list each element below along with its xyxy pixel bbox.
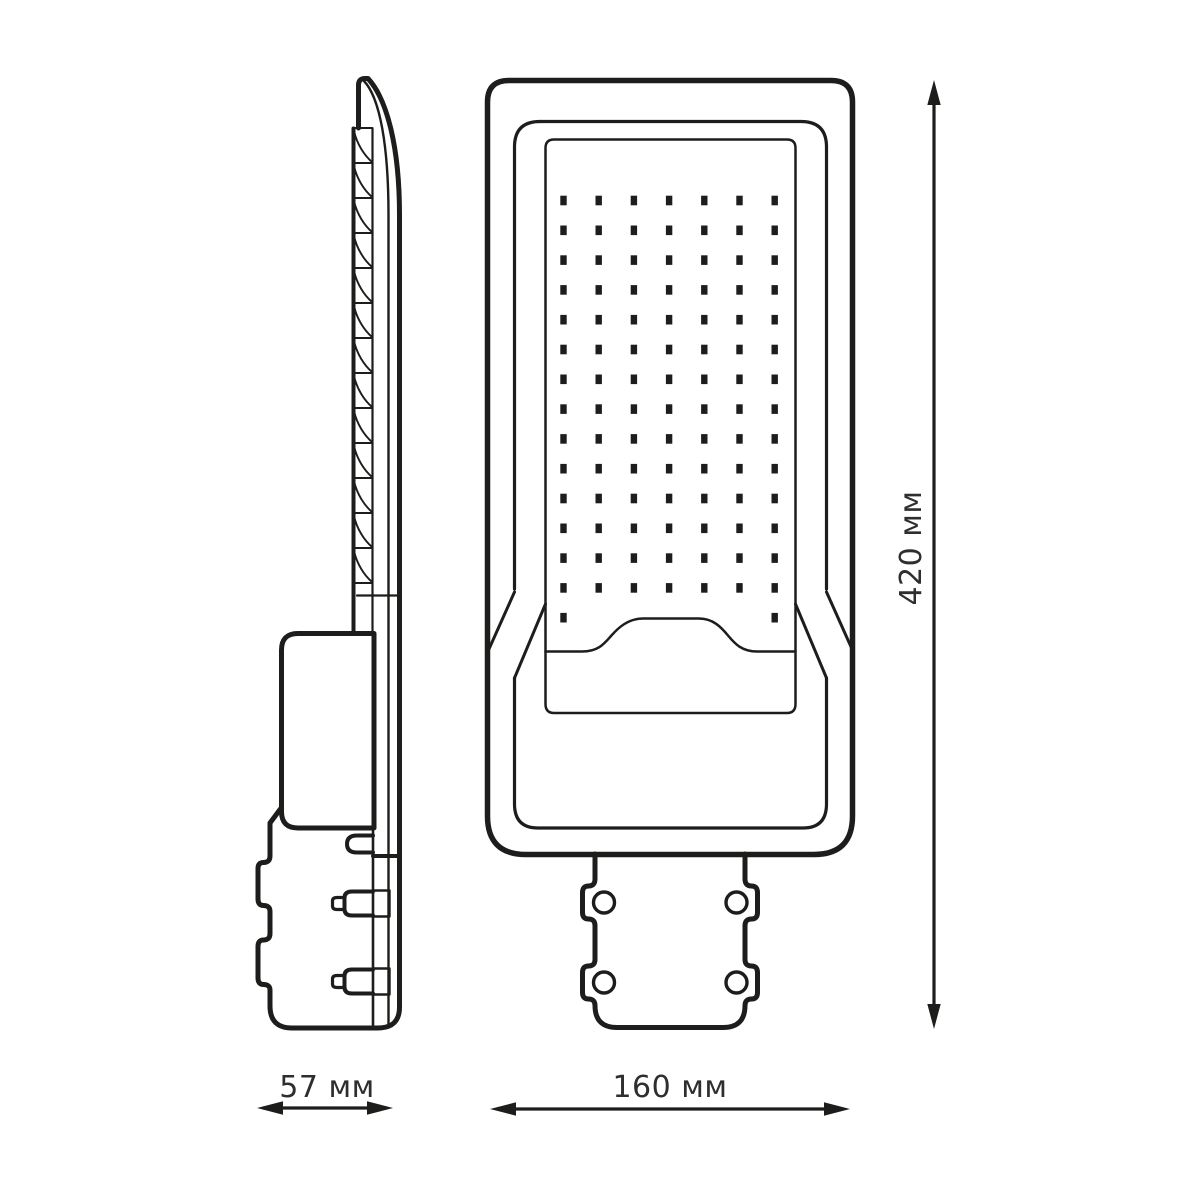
bolt-boss (373, 969, 390, 995)
led-dot (701, 583, 707, 593)
mount-screw-hole (726, 892, 747, 913)
led-dot (772, 494, 778, 504)
side-bolt-upper (333, 891, 390, 917)
led-dot (666, 315, 672, 325)
led-dot (772, 255, 778, 265)
led-dot (596, 226, 602, 236)
led-dot (701, 524, 707, 534)
led-dot (701, 404, 707, 414)
led-dot (736, 315, 742, 325)
led-dot (701, 375, 707, 385)
front-taper-diagonal-right-outer (827, 592, 853, 649)
led-dot (736, 285, 742, 295)
led-dot (560, 583, 566, 593)
height-dimension: 420 мм (894, 80, 941, 1029)
led-dot (560, 345, 566, 355)
led-dot (596, 583, 602, 593)
dimension-annotations: 420 мм 57 мм 160 мм (257, 80, 941, 1116)
led-dot (666, 285, 672, 295)
led-array (560, 196, 778, 623)
fin-blade-curve (354, 306, 372, 337)
front-taper-diagonal-left-inner (515, 604, 546, 678)
led-dot (736, 494, 742, 504)
height-dimension-label: 420 мм (894, 490, 929, 605)
mount-screw-hole (594, 892, 615, 913)
led-dot (666, 375, 672, 385)
led-dot (736, 434, 742, 444)
led-dot (736, 583, 742, 593)
led-dot (631, 375, 637, 385)
led-dot (736, 464, 742, 474)
led-dot (736, 196, 742, 206)
led-dot (772, 375, 778, 385)
led-dot (631, 226, 637, 236)
led-dot (736, 553, 742, 563)
led-dot (596, 494, 602, 504)
led-dot (772, 315, 778, 325)
arrowhead-right-icon (824, 1102, 850, 1115)
led-dot (631, 285, 637, 295)
led-dot (772, 553, 778, 563)
led-dot (631, 315, 637, 325)
front-width-dimension-label: 160 мм (612, 1070, 727, 1105)
led-dot (560, 404, 566, 414)
led-dot (560, 196, 566, 206)
led-dot (772, 524, 778, 534)
fin-blade-curve (354, 516, 372, 547)
led-dot (666, 255, 672, 265)
front-middle-frame-top (540, 122, 827, 590)
led-dot (560, 255, 566, 265)
side-width-dimension-label: 57 мм (279, 1070, 374, 1105)
led-dot (560, 315, 566, 325)
led-dot (772, 613, 778, 623)
led-dot (596, 315, 602, 325)
led-dot (666, 226, 672, 236)
side-width-dimension: 57 мм (257, 1070, 393, 1115)
led-dot (772, 196, 778, 206)
led-dot (596, 464, 602, 474)
side-driver-box (282, 634, 375, 829)
led-dot (736, 255, 742, 265)
led-dot (560, 434, 566, 444)
led-dot (666, 345, 672, 355)
led-dot (631, 345, 637, 355)
front-mount-bracket (583, 854, 758, 1028)
side-outer-profile (258, 79, 400, 1029)
fin-blade-curve (354, 551, 372, 582)
led-dot (772, 464, 778, 474)
fin-blade-curve (354, 446, 372, 477)
led-dot (701, 553, 707, 563)
led-dot (631, 494, 637, 504)
led-dot (701, 226, 707, 236)
led-dot (772, 404, 778, 414)
led-dot (596, 255, 602, 265)
fin-blade-curve (354, 131, 372, 162)
led-dot (666, 434, 672, 444)
led-dot (701, 494, 707, 504)
mount-screw-hole (594, 972, 615, 993)
led-dot (596, 345, 602, 355)
arrowhead-down-icon (927, 1004, 940, 1029)
led-dot (666, 524, 672, 534)
led-dot (560, 464, 566, 474)
fin-blade-curve (354, 411, 372, 442)
technical-drawing-page: 420 мм 57 мм 160 мм (0, 0, 1200, 1200)
heatsink-fins (354, 128, 373, 583)
front-view-drawing (488, 81, 853, 1028)
led-dot (701, 255, 707, 265)
led-dot (596, 553, 602, 563)
led-dot (736, 345, 742, 355)
led-dot (666, 464, 672, 474)
fin-blade-curve (354, 341, 372, 372)
front-width-dimension: 160 мм (490, 1070, 850, 1116)
bolt-boss (373, 891, 390, 917)
led-dot (596, 524, 602, 534)
street-light-technical-drawing: 420 мм 57 мм 160 мм (0, 0, 1200, 1200)
led-dot (560, 226, 566, 236)
led-dot (560, 375, 566, 385)
bolt-body (345, 970, 374, 994)
led-dot (772, 434, 778, 444)
led-dot (772, 345, 778, 355)
led-dot (701, 434, 707, 444)
led-dot (736, 404, 742, 414)
led-dot (560, 553, 566, 563)
led-dot (701, 196, 707, 206)
led-dot (560, 613, 566, 623)
front-middle-frame-bottom (515, 678, 827, 828)
front-taper-diagonal-left-outer (489, 592, 515, 649)
led-dot (631, 434, 637, 444)
led-dot (560, 494, 566, 504)
led-dot (666, 494, 672, 504)
led-dot (772, 226, 778, 236)
led-dot (666, 553, 672, 563)
led-dot (631, 553, 637, 563)
led-dot (631, 524, 637, 534)
front-middle-frame-left (515, 122, 541, 590)
fin-blade-curve (354, 236, 372, 267)
led-dot (631, 255, 637, 265)
side-bolt-lower (333, 969, 390, 995)
fin-blade-curve (354, 376, 372, 407)
led-dot (772, 583, 778, 593)
led-dot (772, 285, 778, 295)
led-dot (701, 285, 707, 295)
led-dot (596, 196, 602, 206)
led-dot (596, 404, 602, 414)
fin-blade-curve (354, 271, 372, 302)
led-dot (666, 196, 672, 206)
led-dot (560, 524, 566, 534)
front-taper-diagonal-right-inner (796, 604, 827, 678)
led-dot (596, 375, 602, 385)
led-dot (631, 464, 637, 474)
bolt-body (345, 892, 374, 916)
fin-blade-curve (354, 166, 372, 197)
fin-blade-curve (354, 201, 372, 232)
side-view-drawing (258, 79, 400, 1029)
led-dot (701, 464, 707, 474)
led-dot (736, 375, 742, 385)
arrowhead-left-icon (490, 1102, 516, 1115)
front-reflector-edge (546, 619, 796, 652)
mount-screw-hole (726, 972, 747, 993)
side-glass-inner-line (364, 81, 389, 1024)
led-dot (560, 285, 566, 295)
arrowhead-up-icon (927, 80, 940, 105)
side-clip-tab (347, 836, 373, 853)
led-dot (701, 345, 707, 355)
led-dot (701, 315, 707, 325)
fin-blade-curve (354, 481, 372, 512)
led-dot (736, 524, 742, 534)
led-dot (596, 285, 602, 295)
led-dot (666, 583, 672, 593)
led-dot (596, 434, 602, 444)
led-dot (631, 196, 637, 206)
led-dot (736, 226, 742, 236)
led-dot (666, 404, 672, 414)
led-dot (631, 404, 637, 414)
led-dot (631, 583, 637, 593)
